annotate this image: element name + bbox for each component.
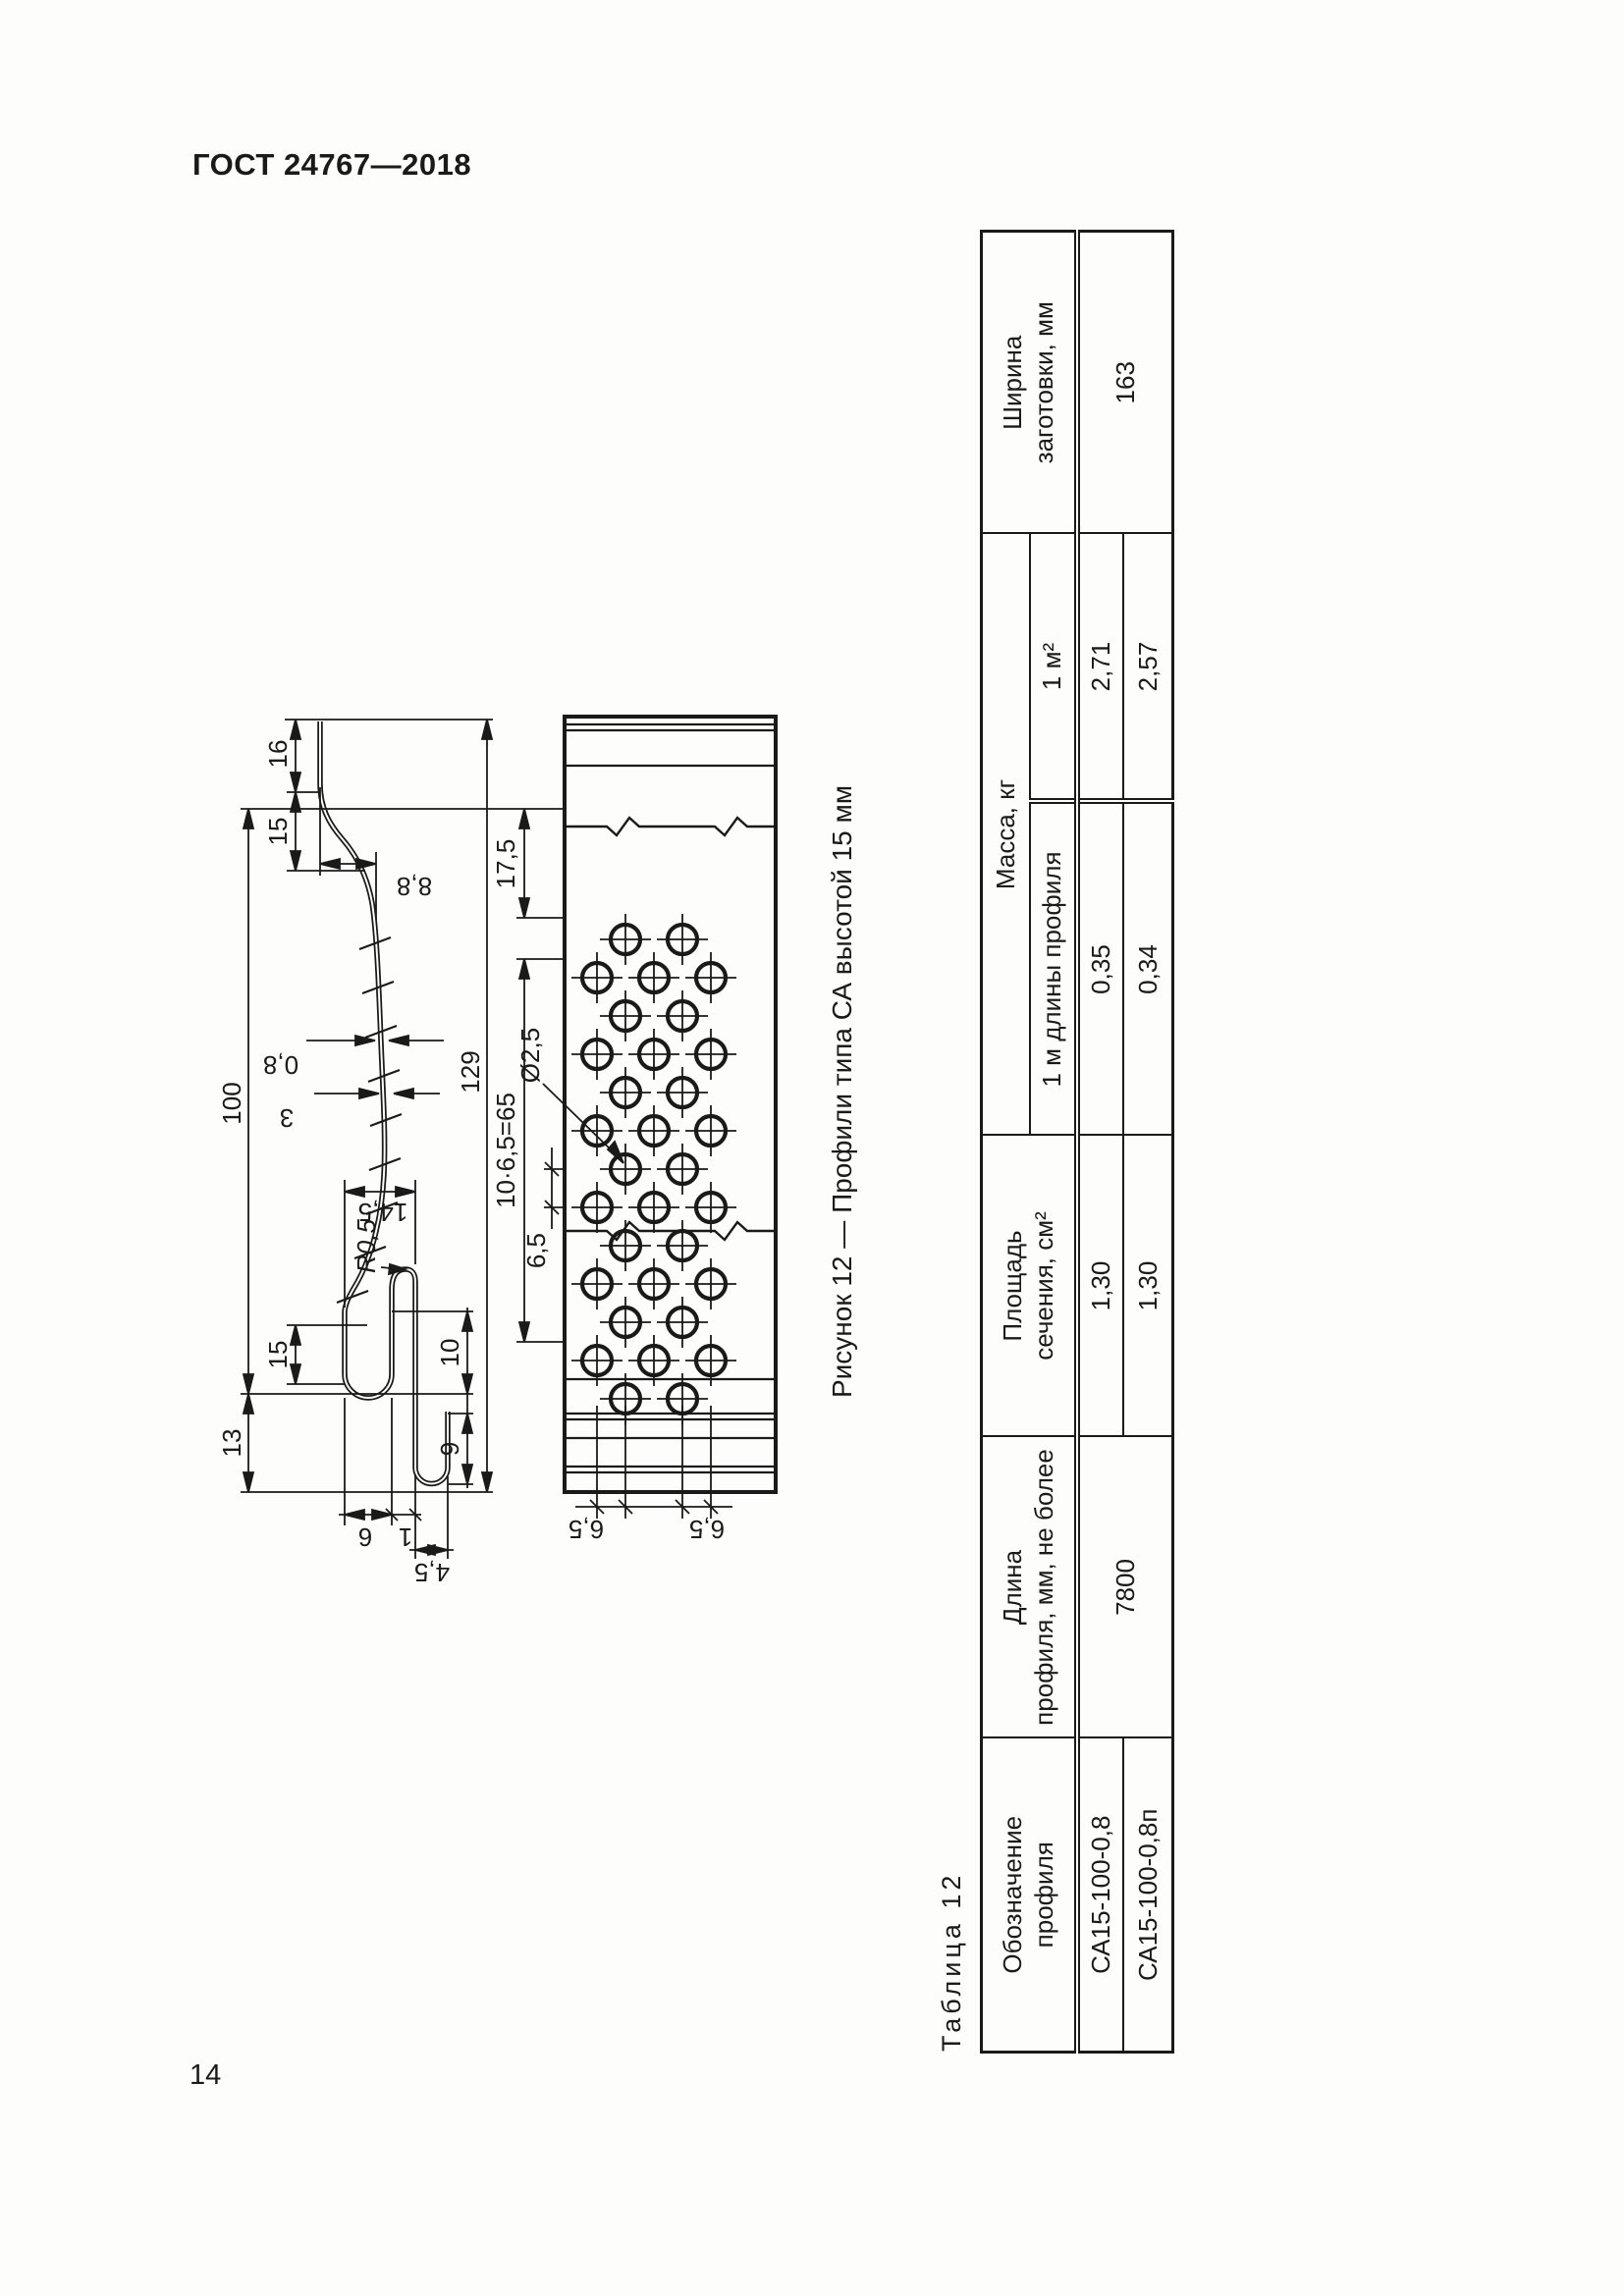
dim-label: R0,5 [352,1219,381,1273]
dim-label: 6,5 [689,1515,725,1544]
dim-label: 17,5 [491,839,520,889]
dim-label: 10 [435,1339,464,1367]
cell-mass-m2-1: 2,71 [1077,534,1123,802]
col-header-width: Ширина заготовки, мм [982,232,1077,534]
col-header-area: Площадь сечения, см² [982,1136,1077,1437]
hole-crosshairs [571,914,736,1424]
cell-area-1: 1,30 [1077,1136,1123,1437]
table-12-label: Таблица 12 [937,1872,967,2052]
dim-label: 15 [263,1341,293,1369]
cell-mass-m2-2: 2,57 [1123,534,1173,802]
dim-label: 8,8 [397,872,432,901]
page-number: 14 [189,2059,221,2092]
cell-length: 7800 [1077,1437,1173,1738]
table-12: Обозначение профиля Длина профиля, мм, н… [980,230,1174,2054]
document-page: ГОСТ 24767—2018 [0,0,1624,2296]
dim-label: 15 [263,818,293,846]
dim-label: 6,5 [568,1515,604,1544]
dim-label: 129 [456,1050,485,1093]
dim-label: 1 [399,1522,412,1552]
dim-label: 3 [280,1103,294,1133]
cell-area-2: 1,30 [1123,1136,1173,1437]
cell-designation-1: СА15-100-0,8 [1077,1738,1123,2053]
dim-label: 4,5 [414,1558,450,1587]
profile-cross-section [320,721,448,1484]
dim-label: 13 [217,1429,246,1458]
cell-mass-m-2: 0,34 [1123,802,1173,1136]
dim-label: 10·6,5=65 [491,1093,520,1208]
dim-label: 9 [435,1442,464,1456]
cell-width: 163 [1077,232,1173,534]
dim-label: 0,8 [263,1050,298,1080]
rotated-landscape-content: 13 100 15 15 16 9 [147,233,1176,2054]
col-header-mass: Масса, кг [982,534,1030,1136]
col-header-length: Длина профиля, мм, не более [982,1437,1077,1738]
col-header-designation: Обозначение профиля [982,1738,1077,2053]
perforated-plate-view [565,717,776,1492]
cell-mass-m-1: 0,35 [1077,802,1123,1136]
subheader-mass-per-m2: 1 м² [1030,534,1077,802]
dim-label: 16 [263,740,293,769]
cell-designation-2: СА15-100-0,8п [1123,1738,1173,2053]
dim-label: 100 [217,1082,246,1124]
figure-caption: Рисунок 12 — Профили типа СА высотой 15 … [827,601,858,1582]
subheader-mass-per-meter: 1 м длины профиля [1030,802,1077,1136]
dim-label: Ø2,5 [515,1028,545,1083]
figure-12-drawing: 13 100 15 15 16 9 [147,233,795,2054]
standard-number-header: ГОСТ 24767—2018 [192,147,471,183]
dim-label: 6,5 [521,1233,551,1268]
dim-label: 6 [358,1522,372,1552]
